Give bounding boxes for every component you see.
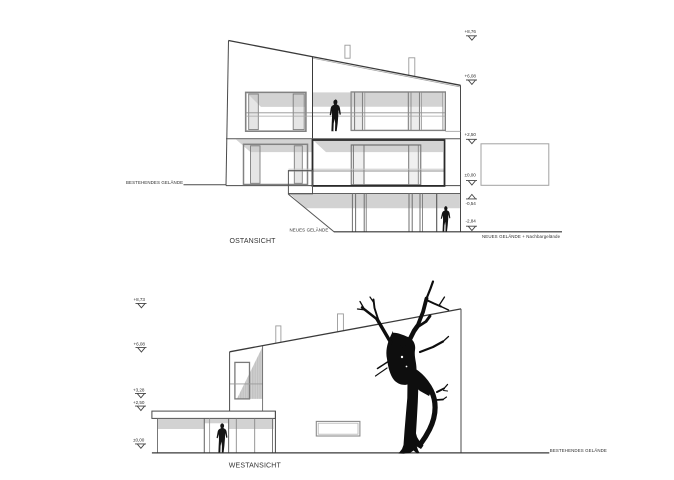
svg-text:+8,73: +8,73 bbox=[134, 297, 146, 302]
svg-text:+6,08: +6,08 bbox=[465, 74, 477, 79]
svg-text:BESTEHENDES GELÄNDE: BESTEHENDES GELÄNDE bbox=[126, 180, 183, 185]
svg-text:+8,76: +8,76 bbox=[465, 29, 477, 34]
svg-text:BESTEHENDES GELÄNDE: BESTEHENDES GELÄNDE bbox=[550, 448, 607, 453]
svg-text:NEUES GELÄNDE: NEUES GELÄNDE bbox=[290, 227, 329, 232]
svg-text:OSTANSICHT: OSTANSICHT bbox=[230, 238, 277, 245]
svg-text:-0,54: -0,54 bbox=[466, 201, 477, 206]
svg-text:±0,00: ±0,00 bbox=[465, 173, 477, 178]
svg-text:+2,50: +2,50 bbox=[465, 132, 477, 137]
svg-text:WESTANSICHT: WESTANSICHT bbox=[229, 463, 282, 470]
svg-text:-2,84: -2,84 bbox=[466, 219, 477, 224]
svg-text:NEUES GELÄNDE + Nachbargelände: NEUES GELÄNDE + Nachbargelände bbox=[482, 234, 561, 239]
svg-text:+2,50: +2,50 bbox=[133, 400, 145, 405]
svg-text:+3,28: +3,28 bbox=[133, 388, 145, 393]
svg-text:+6,08: +6,08 bbox=[134, 341, 146, 346]
svg-text:±0,00: ±0,00 bbox=[133, 438, 145, 443]
